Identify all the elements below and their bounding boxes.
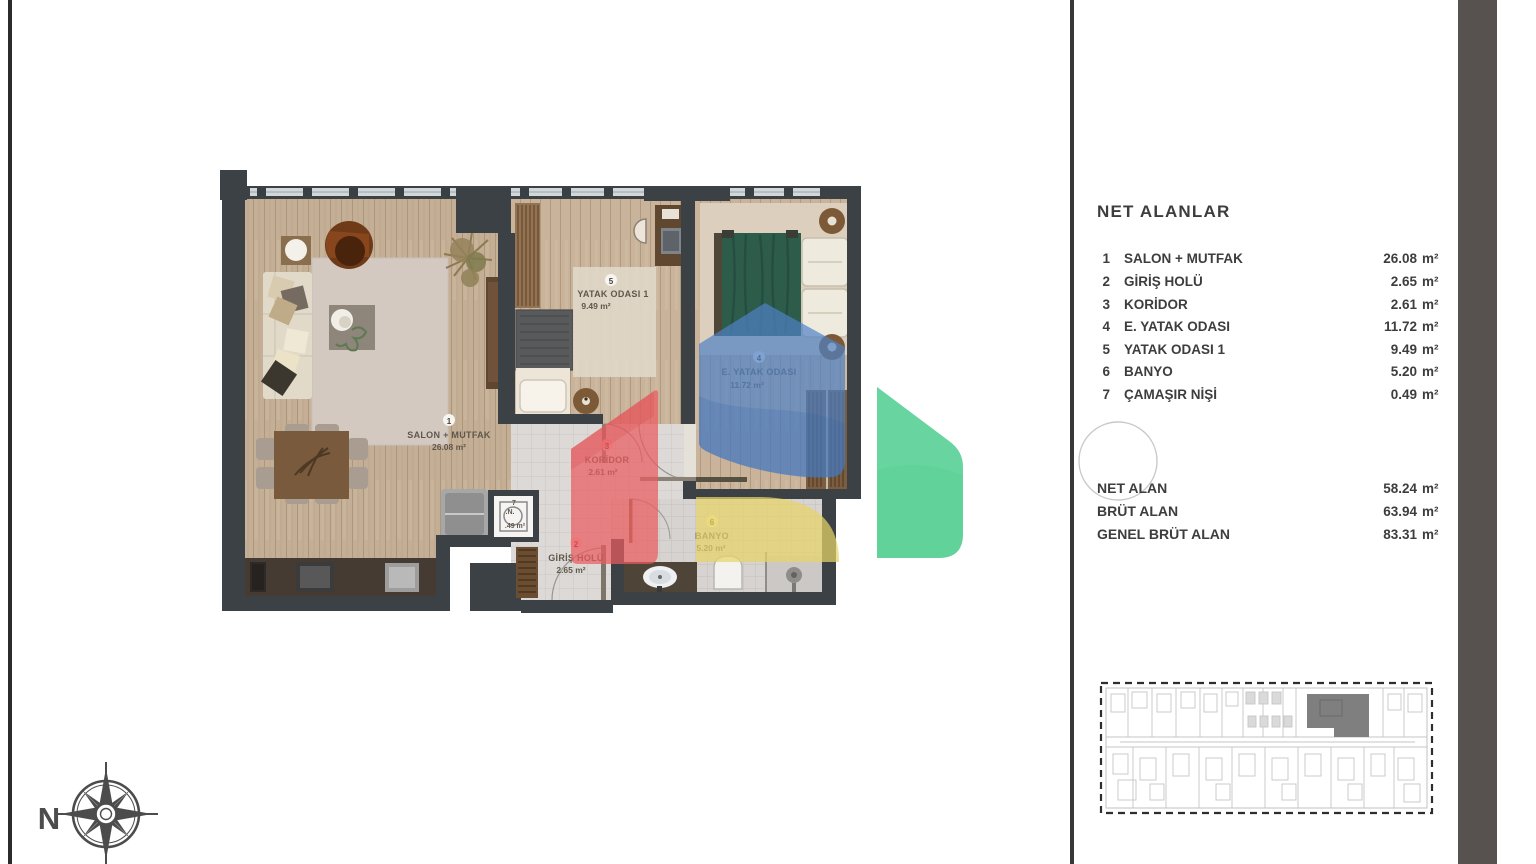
svg-text:m²: m² [1422,387,1439,402]
svg-text:9.49 m²: 9.49 m² [581,301,610,311]
svg-text:SALON + MUTFAK: SALON + MUTFAK [1124,251,1243,266]
svg-text:m²: m² [1422,364,1439,379]
svg-text:4: 4 [1102,319,1110,334]
svg-text:m²: m² [1422,527,1439,542]
svg-text:2.65 m²: 2.65 m² [556,565,585,575]
svg-text:63.94: 63.94 [1383,504,1417,519]
svg-text:1: 1 [447,417,452,426]
svg-text:m²: m² [1422,319,1439,334]
svg-text:YATAK ODASI 1: YATAK ODASI 1 [577,289,648,299]
svg-text:26.08 m²: 26.08 m² [432,442,466,452]
svg-text:2.61: 2.61 [1391,297,1418,312]
svg-text:m²: m² [1422,504,1439,519]
svg-text:E. YATAK ODASI: E. YATAK ODASI [1124,319,1230,334]
svg-text:6: 6 [1102,364,1110,379]
svg-text:.N.: .N. [506,509,515,516]
svg-text:7: 7 [1102,387,1110,402]
svg-text:m²: m² [1422,251,1439,266]
svg-text:1: 1 [1102,251,1110,266]
svg-text:83.31: 83.31 [1383,527,1417,542]
svg-text:m²: m² [1422,481,1439,496]
svg-text:ÇAMAŞIR NİŞİ: ÇAMAŞIR NİŞİ [1124,387,1217,402]
svg-text:3: 3 [1102,297,1110,312]
svg-text:11.72: 11.72 [1384,319,1417,334]
svg-text:GİRİŞ HOLÜ: GİRİŞ HOLÜ [1124,274,1203,289]
svg-text:26.08: 26.08 [1383,251,1417,266]
svg-text:YATAK ODASI 1: YATAK ODASI 1 [1124,342,1226,357]
svg-text:58.24: 58.24 [1383,481,1417,496]
svg-text:m²: m² [1422,274,1439,289]
svg-text:BRÜT ALAN: BRÜT ALAN [1097,503,1178,519]
svg-text:NET ALAN: NET ALAN [1097,480,1167,496]
svg-text:N: N [38,801,60,836]
svg-text:5: 5 [1102,342,1110,357]
svg-text:2: 2 [1102,274,1110,289]
svg-text:.49 m²: .49 m² [505,523,526,530]
svg-text:GENEL BRÜT ALAN: GENEL BRÜT ALAN [1097,526,1230,542]
svg-text:5.20: 5.20 [1391,364,1417,379]
svg-text:0.49: 0.49 [1391,387,1417,402]
svg-text:SALON + MUTFAK: SALON + MUTFAK [407,430,491,440]
svg-text:9.49: 9.49 [1391,342,1417,357]
svg-text:m²: m² [1422,297,1439,312]
svg-text:BANYO: BANYO [1124,364,1173,379]
svg-text:KORİDOR: KORİDOR [1124,297,1188,312]
svg-text:2.65: 2.65 [1391,274,1418,289]
svg-text:m²: m² [1422,342,1439,357]
svg-text:NET ALANLAR: NET ALANLAR [1097,202,1230,221]
svg-text:7: 7 [512,500,516,507]
svg-text:5: 5 [609,277,614,286]
